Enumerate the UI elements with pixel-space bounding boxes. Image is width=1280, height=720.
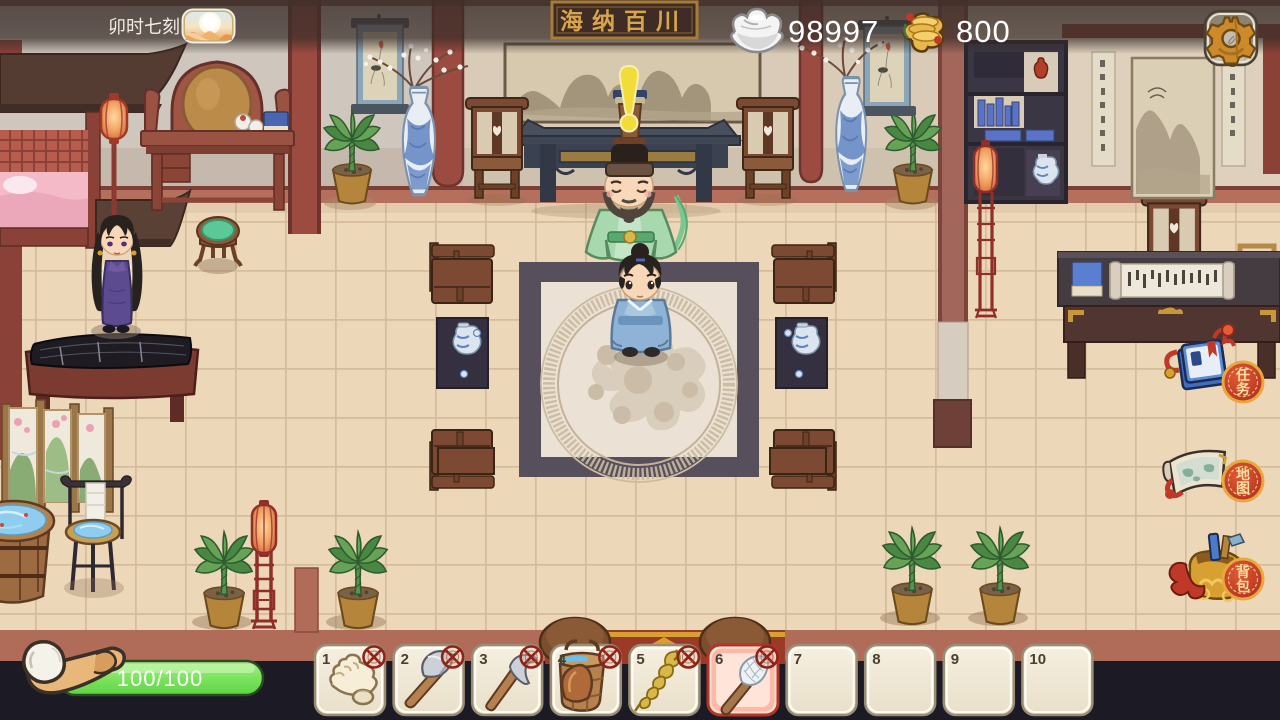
svg-text:务: 务 [1236, 381, 1251, 397]
svg-text:100/100: 100/100 [117, 666, 204, 691]
svg-text:包: 包 [1236, 578, 1250, 594]
svg-text:卯时七刻: 卯时七刻 [108, 17, 180, 37]
svg-text:7: 7 [794, 651, 802, 668]
svg-text:5: 5 [636, 651, 644, 668]
svg-text:98997: 98997 [788, 14, 879, 49]
svg-text:6: 6 [715, 651, 723, 668]
svg-text:9: 9 [951, 651, 959, 668]
svg-text:3: 3 [479, 651, 487, 668]
svg-text:2: 2 [401, 651, 409, 668]
svg-text:8: 8 [872, 651, 880, 668]
svg-text:1: 1 [322, 651, 330, 668]
svg-text:800: 800 [956, 14, 1011, 49]
svg-text:4: 4 [558, 651, 567, 668]
svg-text:10: 10 [1029, 651, 1046, 668]
svg-text:图: 图 [1236, 480, 1250, 496]
svg-text:海纳百川: 海纳百川 [560, 8, 688, 34]
